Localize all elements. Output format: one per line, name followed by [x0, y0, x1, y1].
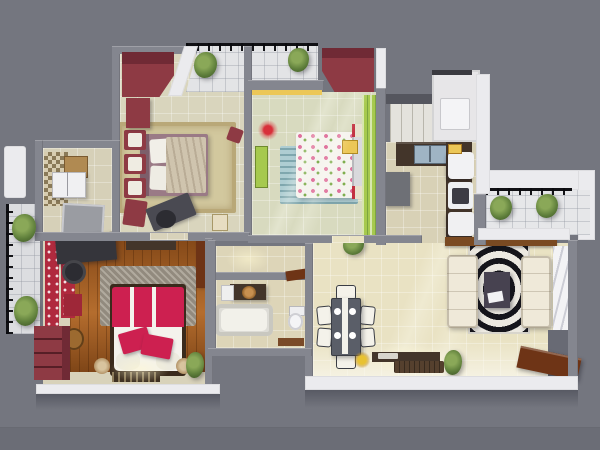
wall-living-top-white [478, 228, 570, 240]
master-office-chair [62, 260, 86, 284]
west-window-strip [4, 146, 26, 198]
bathroom-basin [242, 286, 256, 299]
wall-bedrooms-divider [244, 46, 252, 238]
kitchen-oven-door [452, 188, 469, 204]
dining-chair-bottom [336, 354, 356, 369]
bedroom2-wardrobe-top [322, 48, 374, 58]
bedroom1-side-chair [122, 199, 147, 228]
kitchen-jars [448, 144, 462, 154]
dining-plate-1 [334, 308, 341, 315]
wall-foyer-left [35, 140, 43, 240]
kitchen-table [384, 172, 410, 206]
floor-plan-render [0, 0, 600, 450]
foyer-vanity [52, 172, 86, 198]
wall-bathroom-left [208, 240, 216, 356]
master-duvet-stripe-1 [130, 287, 134, 327]
wall-bedroom2-right [376, 88, 386, 245]
wall-living-right [568, 240, 578, 390]
master-log-stool-1 [94, 358, 110, 374]
utility-top-edge [432, 70, 472, 75]
master-doorway-gap [150, 233, 188, 240]
wall-living-bottom [305, 376, 578, 390]
bedroom1-chair-2-cushion [128, 157, 142, 171]
tv-console-front [394, 361, 444, 373]
bathroom-mat [278, 338, 304, 346]
master-nightstand-red [64, 294, 82, 316]
base-surface-band [0, 428, 600, 450]
bedroom2-bench [255, 146, 268, 188]
master-door-leaf [196, 240, 205, 288]
bedroom2-flower-decor [258, 120, 278, 140]
kitchen-sink-divider [429, 145, 431, 162]
kitchen-fridge [448, 152, 474, 179]
toilet-bowl [288, 313, 303, 330]
kitchen-sink [414, 145, 448, 164]
kitchen-upper-cabinets [390, 104, 434, 142]
master-bed-duvet-red [112, 287, 184, 327]
dining-plate-4 [349, 332, 356, 339]
kitchen-cabinet-low [448, 212, 474, 236]
bedroom1-office-chair [156, 210, 176, 228]
dining-table-runner [342, 298, 348, 354]
tv-console-items [378, 353, 398, 359]
dining-plate-3 [334, 332, 341, 339]
bathroom-divider-wall [216, 272, 286, 280]
bedroom1-cabinet [126, 98, 150, 128]
shadow-living-bottom [305, 390, 578, 408]
bedroom1-chair-3-cushion [128, 181, 142, 195]
bedroom1-nightstand [212, 214, 228, 231]
sofa-left [447, 255, 478, 328]
bathroom-cabinet-white [221, 285, 234, 301]
washing-machine [440, 98, 470, 130]
wall-kitchen-east-white [476, 74, 490, 194]
sofa-right [521, 256, 551, 328]
wall-master-bottom [36, 384, 220, 394]
master-duvet-stripe-2 [152, 287, 156, 327]
bedroom1-chair-1-cushion [128, 133, 142, 147]
shadow-master-bottom [36, 394, 220, 410]
bedroom1-wardrobe-top [122, 52, 174, 64]
wall-bathroom-bottom [208, 348, 312, 356]
dining-chair-right-1 [359, 305, 376, 325]
bedroom2-striped-wardrobe [362, 95, 376, 235]
master-floor-glow [110, 356, 170, 382]
bedroom1-duvet [166, 137, 206, 193]
bathroom-lobby-glow [226, 246, 270, 272]
wall-bedroom2-right-white [376, 48, 386, 92]
master-dresser-side [62, 326, 70, 380]
bedroom2-tray [342, 140, 358, 154]
wall-living-left [305, 243, 313, 390]
master-dresser-drawers [34, 326, 62, 380]
wall-foyer-top [35, 140, 120, 148]
dining-plate-2 [349, 308, 356, 315]
bedroom2-doorway-gap [332, 236, 364, 243]
balcony-east-railing [486, 188, 572, 195]
wall-master-top [35, 232, 250, 241]
foyer-vanity-doors [67, 172, 68, 196]
bathtub-inner [221, 309, 267, 331]
wall-bedroom2-top [248, 80, 324, 90]
